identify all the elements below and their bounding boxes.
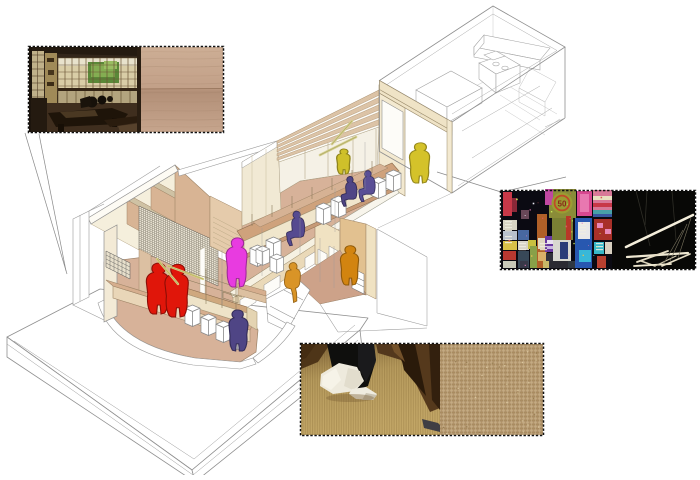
svg-text:50: 50 bbox=[558, 200, 567, 209]
